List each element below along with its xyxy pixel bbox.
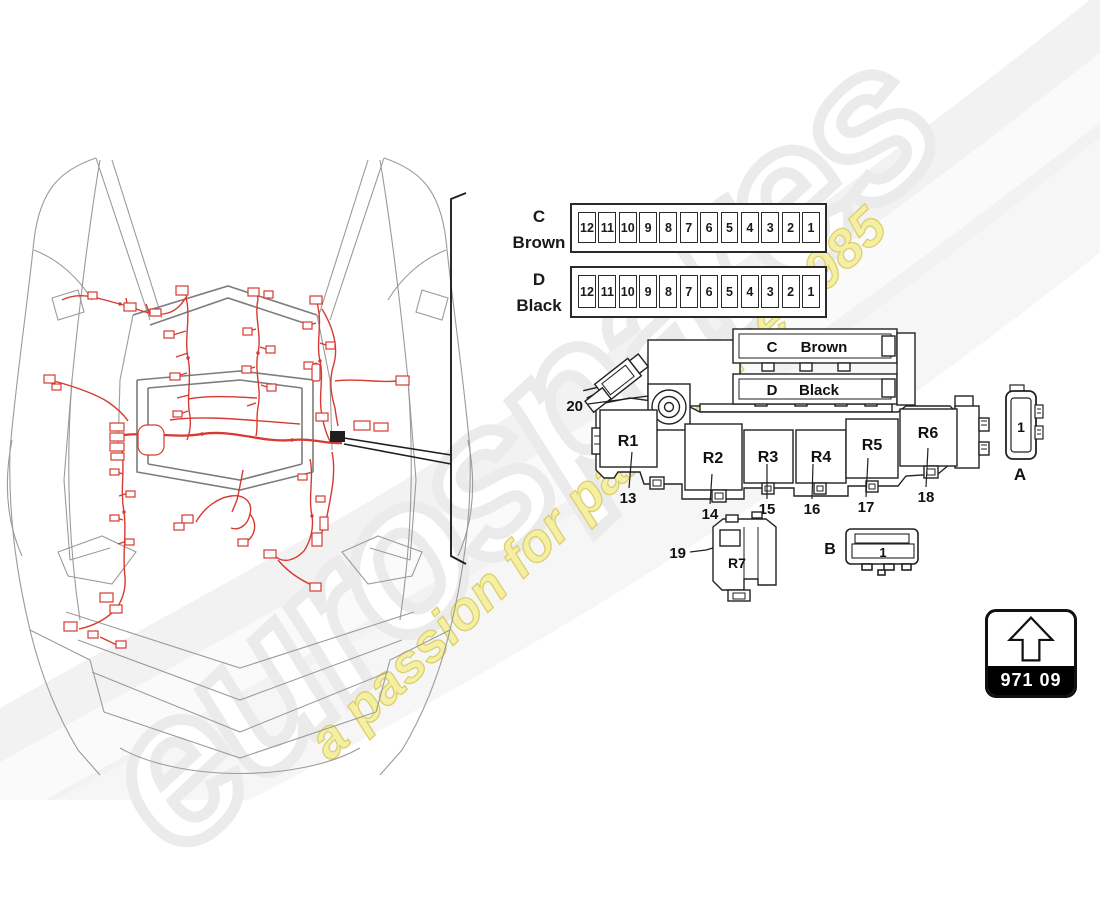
fuse-row-d: 121110987654321	[570, 266, 827, 318]
connector-b-label: B	[824, 541, 836, 558]
fuse-cell: 1	[802, 275, 820, 308]
fuse-cell: 3	[761, 212, 779, 243]
connector-a-label: A	[1014, 465, 1026, 484]
fuse-row-d-name: Black	[499, 293, 579, 319]
panel-section-d-letter: D	[767, 382, 778, 399]
wiring-harness	[44, 286, 409, 648]
relay-label-r5: R5	[862, 437, 883, 454]
fuse-cell: 5	[721, 275, 739, 308]
panel-section-c-letter: C	[767, 339, 778, 356]
fuse-row-c: 121110987654321	[570, 203, 827, 253]
callout-16: 16	[804, 501, 821, 518]
fuse-cell: 10	[619, 275, 637, 308]
fuse-cell: 6	[700, 212, 718, 243]
callout-17: 17	[858, 499, 875, 516]
fuse-cell: 2	[782, 275, 800, 308]
part-code: 971 09	[988, 666, 1074, 695]
relay-label-r6: R6	[918, 425, 939, 442]
part-number-box: 971 09	[985, 609, 1077, 698]
callout-14: 14	[702, 506, 719, 523]
connector-a: 1 A	[1006, 385, 1043, 484]
callout-20: 20	[566, 398, 583, 415]
callout-18: 18	[918, 489, 935, 506]
fuse-cell: 9	[639, 275, 657, 308]
relay-label-r3: R3	[758, 449, 779, 466]
callout-19: 19	[669, 545, 686, 562]
fuse-cell: 3	[761, 275, 779, 308]
connector-a-pin: 1	[1017, 419, 1025, 435]
fusebox-location-marker	[330, 431, 345, 442]
up-arrow-icon	[991, 613, 1071, 665]
callout-13: 13	[620, 490, 637, 507]
fuse-cell: 10	[619, 212, 637, 243]
fuse-cell: 11	[598, 212, 616, 243]
fuse-cell: 5	[721, 212, 739, 243]
fuse-row-d-label: D Black	[499, 267, 579, 319]
fuse-row-c-label: C Brown	[499, 204, 579, 256]
parts-diagram: C Brown D Black R1 R2 R3 R4 R5 R6 20 13 …	[0, 0, 1100, 800]
part-box-arrow-area	[988, 612, 1074, 666]
fuse-cell: 11	[598, 275, 616, 308]
fuse-cell: 7	[680, 275, 698, 308]
relay-label-r1: R1	[618, 433, 639, 450]
fuse-row-c-letter: C	[499, 204, 579, 230]
fuse-cell: 8	[659, 212, 677, 243]
relay-label-r4: R4	[811, 449, 832, 466]
relay-panel: C Brown D Black R1 R2 R3 R4 R5 R6	[582, 329, 989, 502]
fuse-cell: 6	[700, 275, 718, 308]
panel-section-c-name: Brown	[801, 339, 848, 356]
fuse-cell: 12	[578, 275, 596, 308]
connector-b: B 1	[824, 529, 918, 575]
fuse-row-d-letter: D	[499, 267, 579, 293]
relay-label-r2: R2	[703, 450, 724, 467]
relay-r7: R7 19	[669, 512, 776, 601]
panel-section-d-name: Black	[799, 382, 840, 399]
car-wireframe	[7, 158, 472, 775]
connector-b-pin: 1	[879, 545, 886, 560]
relay-label-r7: R7	[728, 555, 746, 571]
fuse-cell: 7	[680, 212, 698, 243]
fuse-cell: 2	[782, 212, 800, 243]
fuse-row-c-name: Brown	[499, 230, 579, 256]
fuse-cell: 9	[639, 212, 657, 243]
fuse-cell: 8	[659, 275, 677, 308]
fuse-cell: 12	[578, 212, 596, 243]
fuse-cell: 1	[802, 212, 820, 243]
fuse-cell: 4	[741, 275, 759, 308]
fuse-cell: 4	[741, 212, 759, 243]
